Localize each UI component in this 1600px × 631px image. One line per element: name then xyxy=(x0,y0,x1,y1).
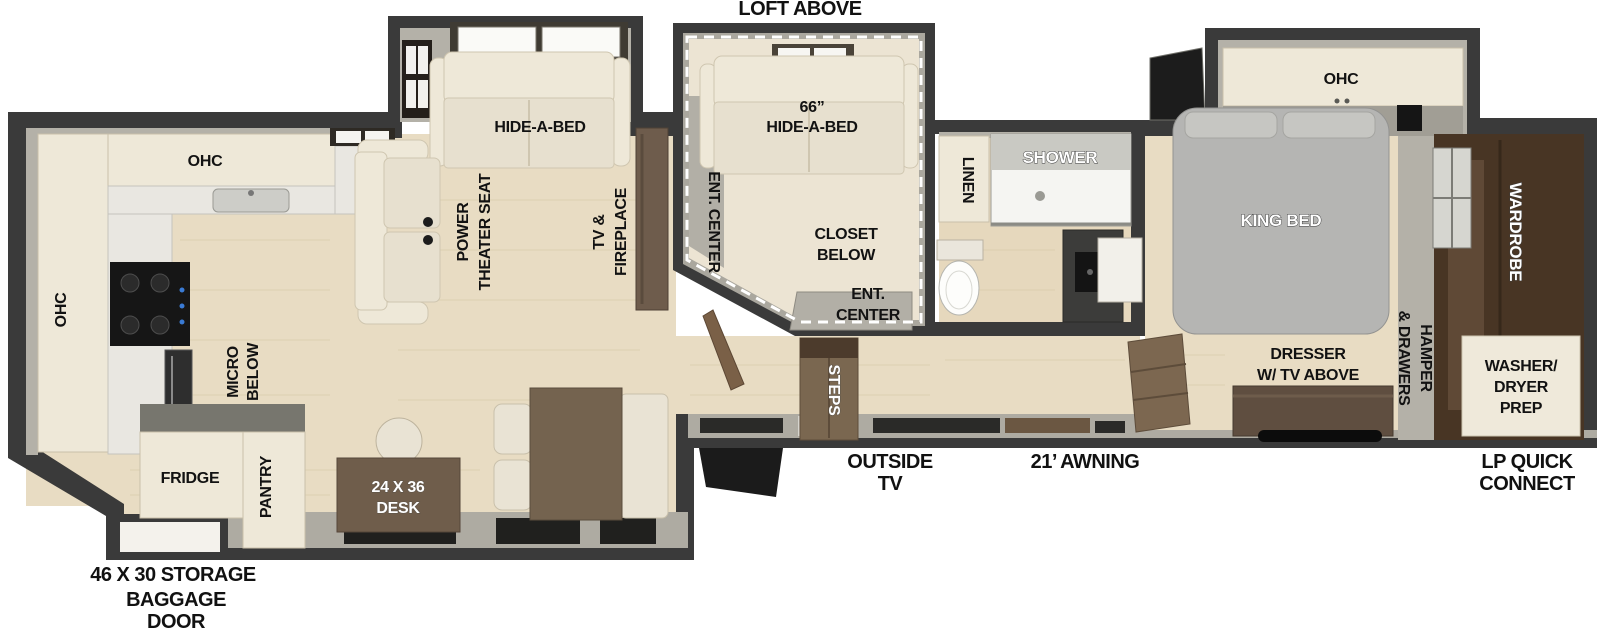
desk-chair xyxy=(376,418,422,464)
king-bed-label: KING BED xyxy=(1241,211,1322,230)
washer-dryer-label: DRYER xyxy=(1494,379,1549,396)
knob-icon xyxy=(180,304,185,309)
dinette-chair xyxy=(494,460,532,510)
theater-seat-cushion xyxy=(384,158,440,228)
bathroom-bottom-wall xyxy=(925,322,1145,336)
theater-seat-back xyxy=(355,152,387,310)
pillow xyxy=(1185,112,1277,138)
desk-label: DESK xyxy=(376,500,420,517)
dresser-label: DRESSER xyxy=(1270,346,1346,363)
burner-icon xyxy=(121,316,139,334)
lp-quick-connect-label: LP QUICK xyxy=(1481,451,1573,473)
fridge-label: FRIDGE xyxy=(161,470,220,487)
bedroom-slide-top-wall xyxy=(1205,28,1480,42)
baggage-door-label: BAGGAGE xyxy=(126,589,226,611)
living-slide-right-wall xyxy=(629,16,643,122)
knob-icon xyxy=(180,320,185,325)
washer-dryer-label: PREP xyxy=(1500,400,1543,417)
cupholder-icon xyxy=(423,235,433,245)
lining xyxy=(26,128,38,455)
handle-icon xyxy=(1345,99,1350,104)
knob-icon xyxy=(180,288,185,293)
faucet-icon xyxy=(248,190,254,196)
pillow xyxy=(1283,112,1375,138)
dinette-bench xyxy=(620,394,668,518)
burner-icon xyxy=(151,274,169,292)
floorplan-page: LOFT ABOVE 46 X 30 STORAGE BAGGAGE DOOR … xyxy=(0,0,1600,631)
toilet-tank xyxy=(937,240,983,260)
linen-label: LINEN xyxy=(959,157,976,204)
storage-bay-lid-brown xyxy=(1005,418,1090,433)
outside-tv-label: TV xyxy=(878,473,904,495)
burner-icon xyxy=(151,316,169,334)
hide-a-bed-back xyxy=(444,52,614,104)
tv-fireplace-label: TV & xyxy=(591,214,608,250)
cupholder-icon xyxy=(423,217,433,227)
left-ohc-cabinet xyxy=(38,134,108,452)
hamper-label: & DRAWERS xyxy=(1395,310,1412,406)
dinette-table xyxy=(530,388,622,520)
micro-below-label: BELOW xyxy=(245,342,262,401)
faucet-icon xyxy=(1087,269,1093,275)
front-wall xyxy=(1583,118,1597,448)
window-pane xyxy=(418,80,428,108)
storage-bay-lid xyxy=(700,418,783,433)
theater-seat-label: THEATER SEAT xyxy=(477,173,494,290)
sofa-armrest xyxy=(612,58,630,166)
washer-dryer-label: WASHER/ xyxy=(1485,358,1558,375)
ent-center-bottom-label: ENT. xyxy=(851,286,884,303)
closet-below-label: CLOSET xyxy=(814,226,878,243)
kitchen-left-wall xyxy=(8,112,26,452)
steps-top xyxy=(800,338,858,358)
kitchen-top-wall xyxy=(8,112,398,128)
bedroom-ohc-label: OHC xyxy=(1324,71,1359,88)
living-slide-left-wall xyxy=(388,16,402,138)
wardrobe-label: WARDROBE xyxy=(1506,183,1525,282)
loft-hide-a-bed-label: HIDE-A-BED xyxy=(766,119,857,136)
toilet-icon xyxy=(939,261,979,315)
floorplan-svg: LOFT ABOVE 46 X 30 STORAGE BAGGAGE DOOR … xyxy=(0,0,1600,631)
awning-label: 21’ AWNING xyxy=(1031,451,1140,473)
dinette-chair xyxy=(494,404,532,454)
window-pane xyxy=(406,46,416,74)
cooktop xyxy=(110,262,190,346)
kitchen-window-pane xyxy=(336,131,361,143)
ohc-top-label: OHC xyxy=(188,153,223,170)
bedroom-steps xyxy=(1128,334,1190,432)
lp-quick-connect-label: CONNECT xyxy=(1479,473,1575,495)
storage-bay-door xyxy=(600,518,656,544)
micro-below-label: MICRO xyxy=(225,346,242,398)
bathroom-right-wall xyxy=(1131,120,1145,336)
outside-tv-label: OUTSIDE xyxy=(847,451,933,473)
pantry-label: PANTRY xyxy=(258,455,275,518)
hamper-label: HAMPER xyxy=(1417,324,1434,392)
hide-a-bed-label: HIDE-A-BED xyxy=(494,119,585,136)
window-pane xyxy=(406,80,416,108)
shower-label: SHOWER xyxy=(1023,148,1098,167)
closet-below-label: BELOW xyxy=(817,247,876,264)
ohc-left-label: OHC xyxy=(53,292,70,327)
storage-bay-lid xyxy=(1095,421,1125,433)
steps-label: STEPS xyxy=(825,365,842,417)
ent-center-bottom-label: CENTER xyxy=(836,307,901,324)
nightstand-item xyxy=(1397,105,1422,131)
dresser-label: W/ TV ABOVE xyxy=(1257,367,1360,384)
loft-above-label: LOFT ABOVE xyxy=(738,0,861,20)
tv-icon xyxy=(1258,430,1382,442)
ent-center-side-label: ENT. CENTER xyxy=(705,171,722,273)
loft-hide-a-bed-label: 66” xyxy=(800,99,825,116)
dresser xyxy=(1233,386,1393,436)
island-countertop xyxy=(140,404,305,432)
handle-icon xyxy=(1335,99,1340,104)
tv-fireplace-label: FIREPLACE xyxy=(613,187,630,276)
medicine-cabinet xyxy=(1098,238,1142,302)
baggage-door-label: DOOR xyxy=(147,611,206,631)
desk-label: 24 X 36 xyxy=(371,479,424,496)
drain-icon xyxy=(1035,191,1045,201)
front-cap-top-wall xyxy=(1467,118,1597,134)
bathroom-top-wall xyxy=(925,120,1145,134)
theater-seat-label: POWER xyxy=(455,202,472,262)
storage-bay-door xyxy=(496,518,580,544)
burner-icon xyxy=(121,274,139,292)
window-pane xyxy=(418,46,428,74)
storage-bay-lid xyxy=(873,418,1000,433)
storage-label: 46 X 30 STORAGE xyxy=(90,564,256,586)
storage-bay-46x30 xyxy=(120,522,220,552)
